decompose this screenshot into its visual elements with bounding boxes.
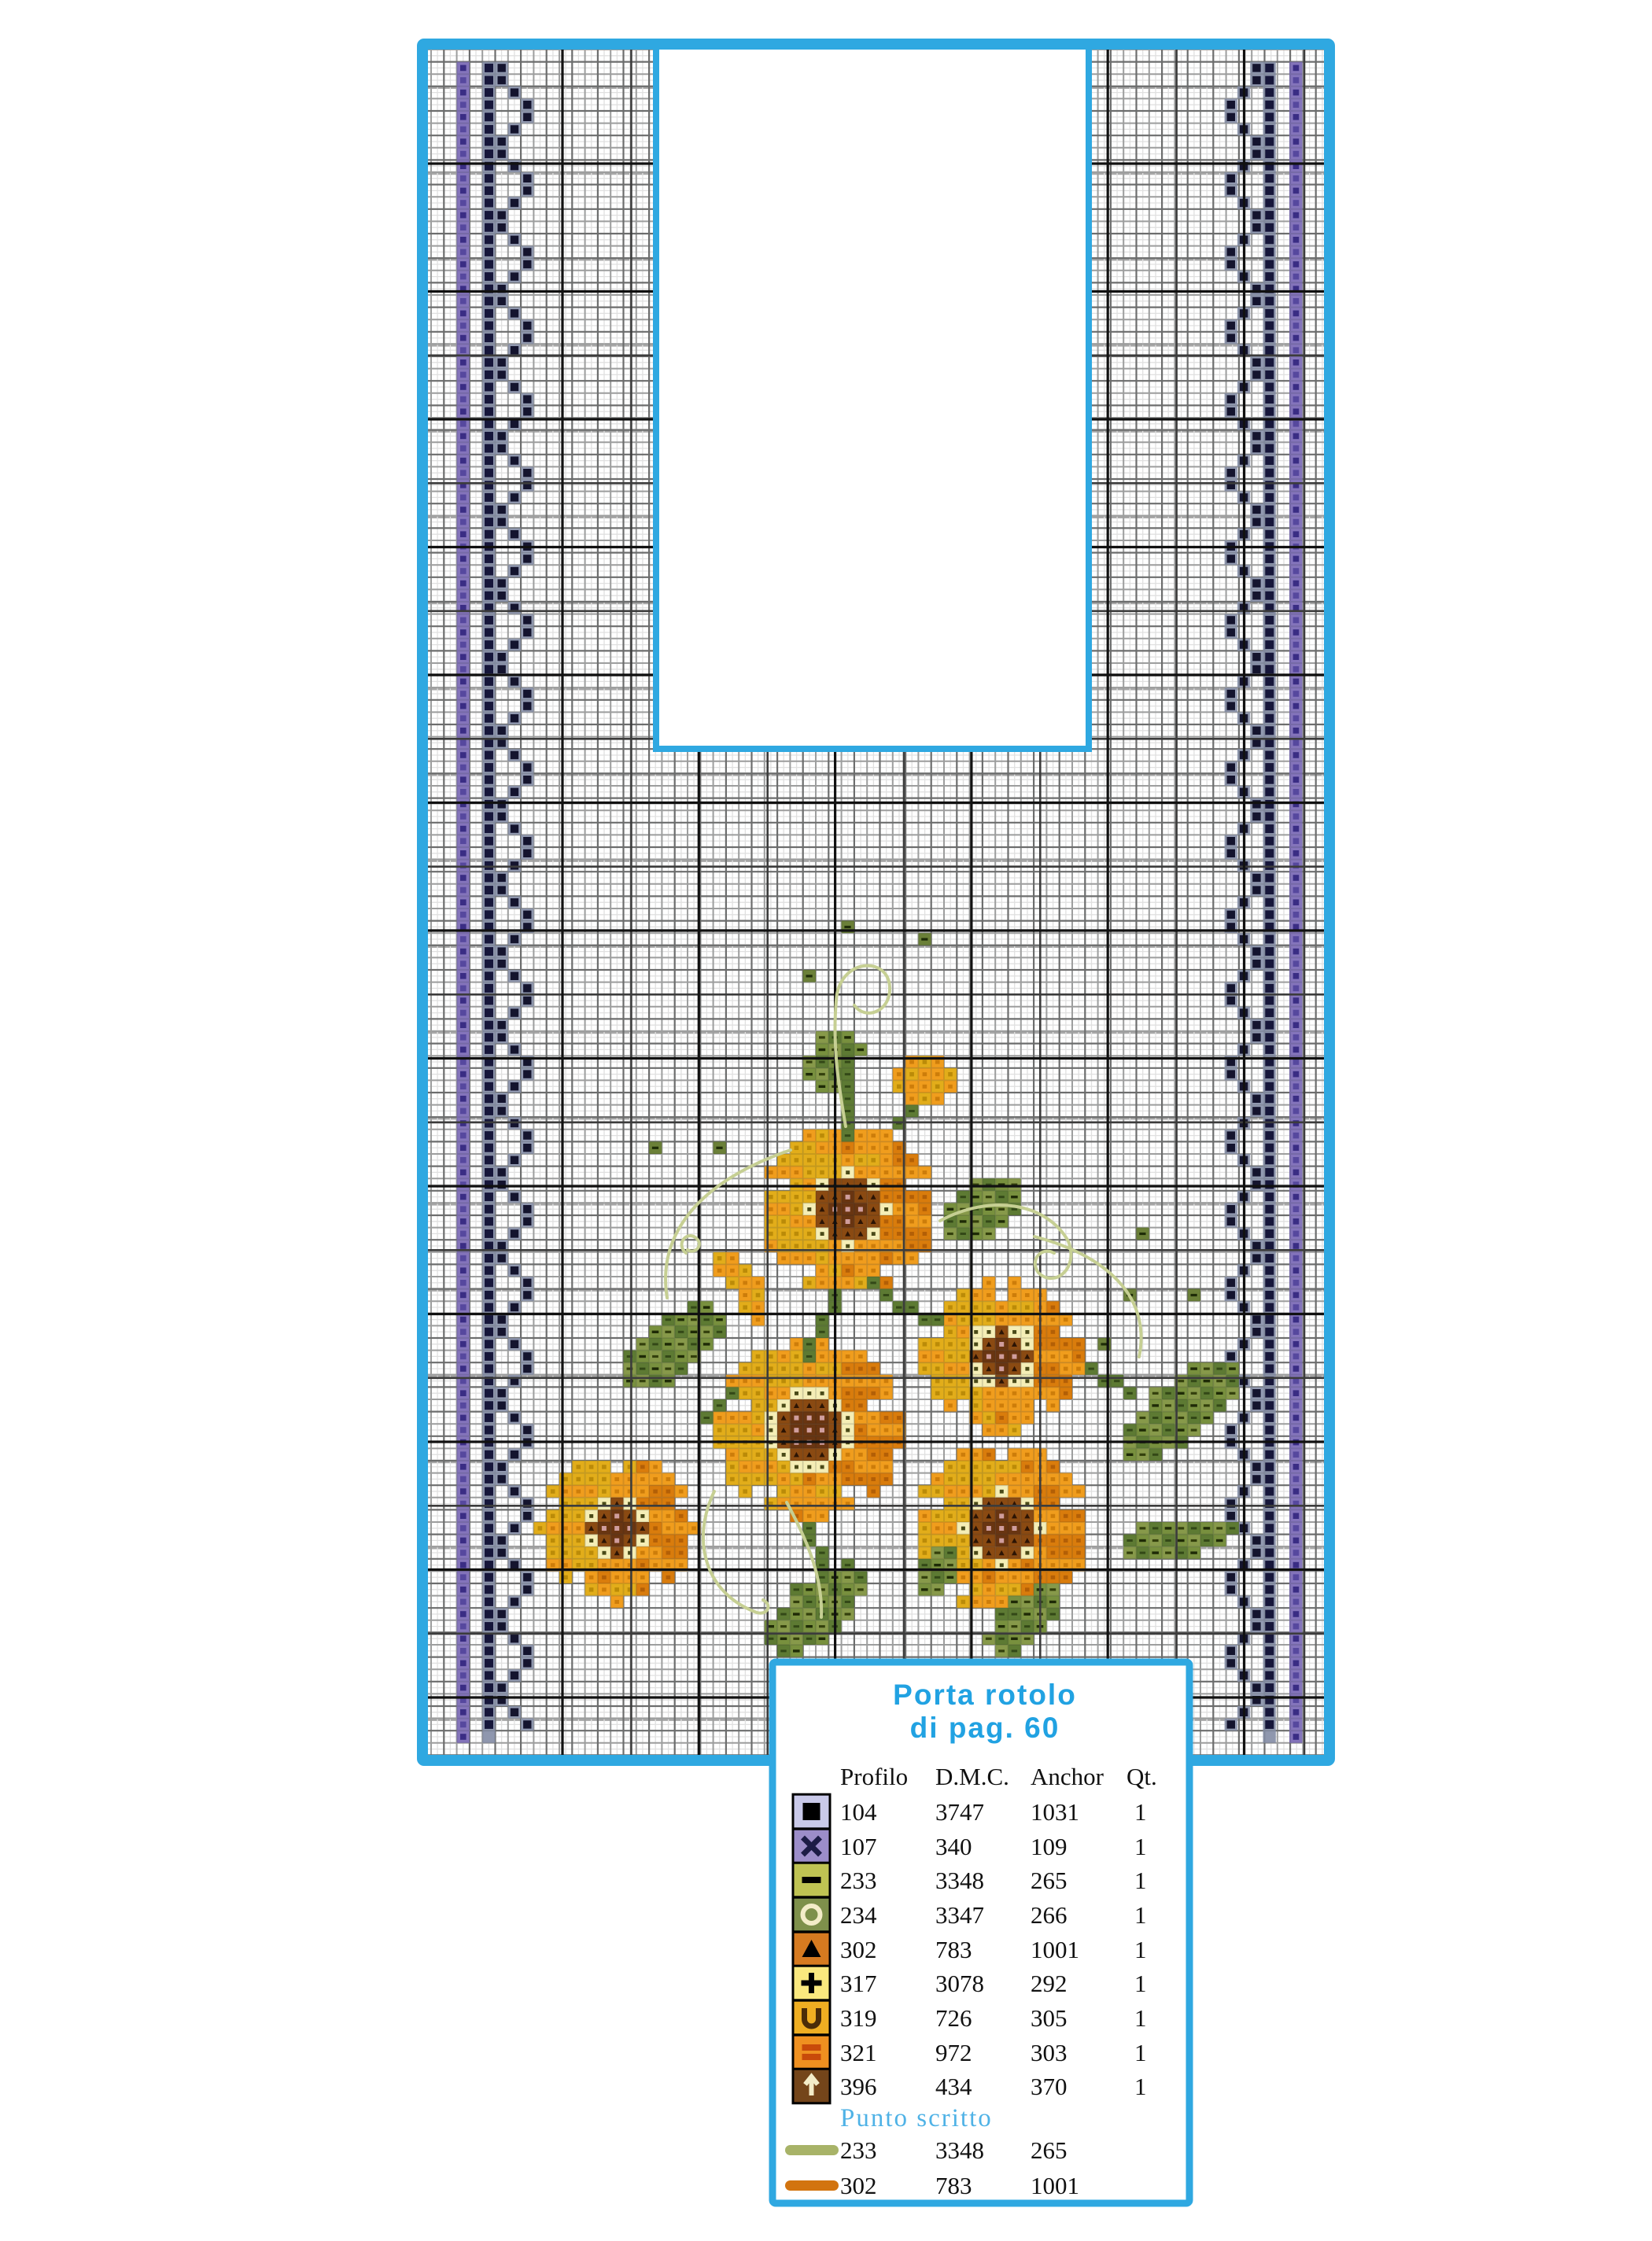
svg-text:1: 1 — [1134, 1936, 1147, 1963]
svg-text:D.M.C.: D.M.C. — [935, 1763, 1009, 1790]
svg-text:1: 1 — [1134, 1833, 1147, 1860]
svg-text:292: 292 — [1031, 1970, 1068, 1997]
svg-text:1: 1 — [1134, 2039, 1147, 2066]
svg-text:109: 109 — [1031, 1833, 1068, 1860]
svg-text:233: 233 — [840, 2136, 877, 2164]
svg-text:317: 317 — [840, 1970, 877, 1997]
svg-text:3348: 3348 — [935, 2136, 984, 2164]
svg-text:1: 1 — [1134, 1970, 1147, 1997]
svg-text:Profilo: Profilo — [840, 1763, 908, 1790]
svg-text:319: 319 — [840, 2004, 877, 2032]
svg-text:726: 726 — [935, 2004, 972, 2032]
svg-text:1: 1 — [1134, 1798, 1147, 1826]
svg-text:302: 302 — [840, 1936, 877, 1963]
svg-text:Porta rotolo: Porta rotolo — [893, 1679, 1077, 1711]
svg-text:265: 265 — [1031, 2136, 1068, 2164]
svg-text:321: 321 — [840, 2039, 877, 2066]
svg-text:107: 107 — [840, 1833, 877, 1860]
svg-text:303: 303 — [1031, 2039, 1068, 2066]
svg-text:234: 234 — [840, 1901, 877, 1929]
svg-text:972: 972 — [935, 2039, 972, 2066]
svg-text:Punto scritto: Punto scritto — [840, 2104, 993, 2132]
svg-text:1: 1 — [1134, 1901, 1147, 1929]
svg-text:3347: 3347 — [935, 1901, 984, 1929]
svg-text:3747: 3747 — [935, 1798, 984, 1826]
svg-text:1001: 1001 — [1031, 1936, 1079, 1963]
svg-text:1001: 1001 — [1031, 2172, 1079, 2199]
svg-text:1: 1 — [1134, 2073, 1147, 2100]
svg-text:3078: 3078 — [935, 1970, 984, 1997]
svg-text:Qt.: Qt. — [1127, 1763, 1157, 1790]
svg-text:3348: 3348 — [935, 1867, 984, 1894]
svg-text:783: 783 — [935, 2172, 972, 2199]
svg-text:302: 302 — [840, 2172, 877, 2199]
svg-text:Anchor: Anchor — [1031, 1763, 1104, 1790]
svg-text:434: 434 — [935, 2073, 972, 2100]
svg-text:265: 265 — [1031, 1867, 1068, 1894]
svg-text:305: 305 — [1031, 2004, 1068, 2032]
svg-text:1: 1 — [1134, 1867, 1147, 1894]
svg-text:1031: 1031 — [1031, 1798, 1079, 1826]
svg-text:266: 266 — [1031, 1901, 1068, 1929]
svg-text:396: 396 — [840, 2073, 877, 2100]
svg-text:104: 104 — [840, 1798, 877, 1826]
svg-text:di pag. 60: di pag. 60 — [910, 1712, 1060, 1744]
svg-text:233: 233 — [840, 1867, 877, 1894]
svg-text:370: 370 — [1031, 2073, 1068, 2100]
svg-text:1: 1 — [1134, 2004, 1147, 2032]
svg-text:340: 340 — [935, 1833, 972, 1860]
svg-text:783: 783 — [935, 1936, 972, 1963]
